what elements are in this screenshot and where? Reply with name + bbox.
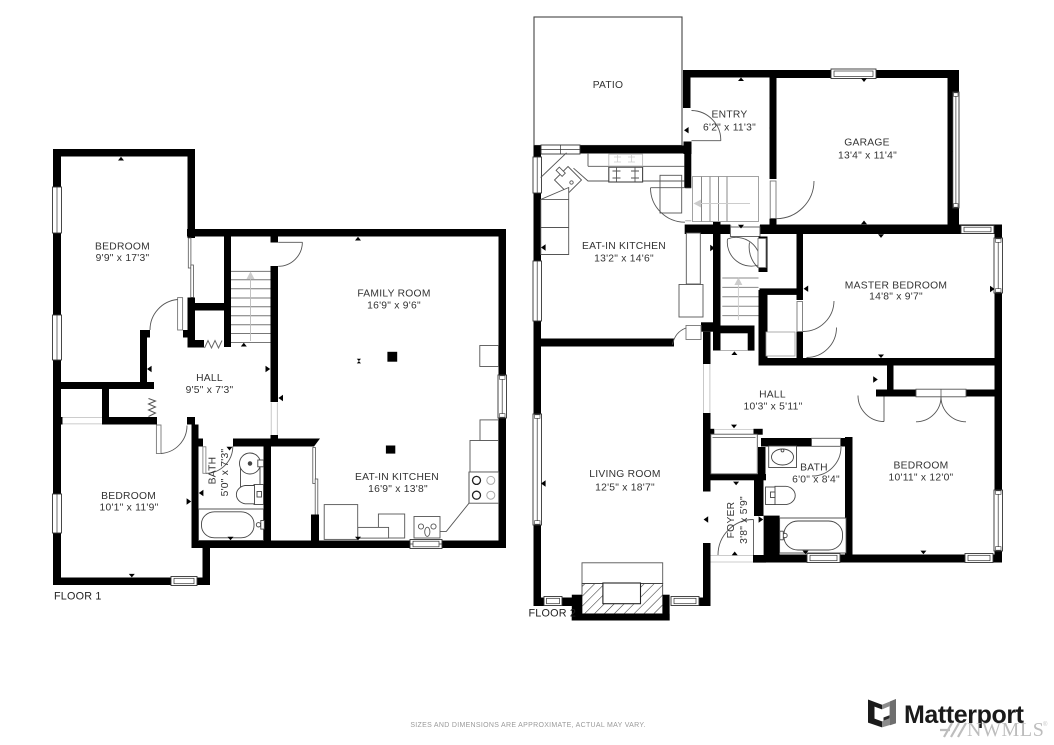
svg-text:FAMILY ROOM: FAMILY ROOM [357, 289, 430, 300]
svg-text:MASTER BEDROOM: MASTER BEDROOM [845, 281, 947, 292]
svg-text:NWMLS: NWMLS [967, 719, 1044, 741]
svg-text:GARAGE: GARAGE [844, 137, 890, 148]
svg-text:FOYER: FOYER [726, 502, 737, 539]
svg-text:ENTRY: ENTRY [712, 110, 748, 121]
svg-text:HALL: HALL [759, 390, 786, 401]
svg-text:10'1" x 11'9": 10'1" x 11'9" [100, 503, 159, 514]
svg-text:9'5" x 7'3": 9'5" x 7'3" [186, 385, 234, 396]
svg-text:PATIO: PATIO [593, 80, 624, 91]
svg-text:BEDROOM: BEDROOM [894, 461, 949, 472]
svg-text:13'4" x 11'4": 13'4" x 11'4" [838, 151, 897, 162]
svg-text:LIVING ROOM: LIVING ROOM [589, 469, 660, 480]
svg-text:10'11" x 12'0": 10'11" x 12'0" [889, 473, 954, 484]
svg-text:FLOOR 2: FLOOR 2 [529, 608, 577, 620]
svg-text:3'8" x 5'9": 3'8" x 5'9" [739, 496, 750, 544]
svg-text:HALL: HALL [196, 373, 223, 384]
svg-text:9'9" x 17'3": 9'9" x 17'3" [96, 253, 150, 264]
svg-text:®: ® [1043, 721, 1048, 728]
svg-text:10'3" x 5'11": 10'3" x 5'11" [744, 402, 803, 413]
svg-text:13'2" x 14'6": 13'2" x 14'6" [594, 253, 654, 264]
svg-text:12'5" x 18'7": 12'5" x 18'7" [595, 483, 655, 494]
svg-text:5'0" x 7'3": 5'0" x 7'3" [220, 449, 231, 497]
svg-text:BEDROOM: BEDROOM [101, 491, 156, 502]
svg-text:6'2" x 11'3": 6'2" x 11'3" [703, 122, 756, 133]
svg-text:BEDROOM: BEDROOM [95, 242, 150, 253]
svg-text:FLOOR 1: FLOOR 1 [54, 591, 102, 603]
svg-text:6'0" x 8'4": 6'0" x 8'4" [792, 475, 840, 486]
svg-text:16'9" x 9'6": 16'9" x 9'6" [367, 301, 421, 312]
svg-text:SIZES AND DIMENSIONS ARE APPRO: SIZES AND DIMENSIONS ARE APPROXIMATE, AC… [410, 722, 645, 729]
svg-text:EAT-IN KITCHEN: EAT-IN KITCHEN [582, 241, 666, 252]
svg-text:16'9" x 13'8": 16'9" x 13'8" [368, 484, 428, 495]
svg-text:BATH: BATH [208, 457, 219, 485]
svg-text:BATH: BATH [800, 462, 828, 473]
svg-text:EAT-IN KITCHEN: EAT-IN KITCHEN [355, 472, 439, 483]
svg-text:14'8" x 9'7": 14'8" x 9'7" [869, 291, 923, 302]
